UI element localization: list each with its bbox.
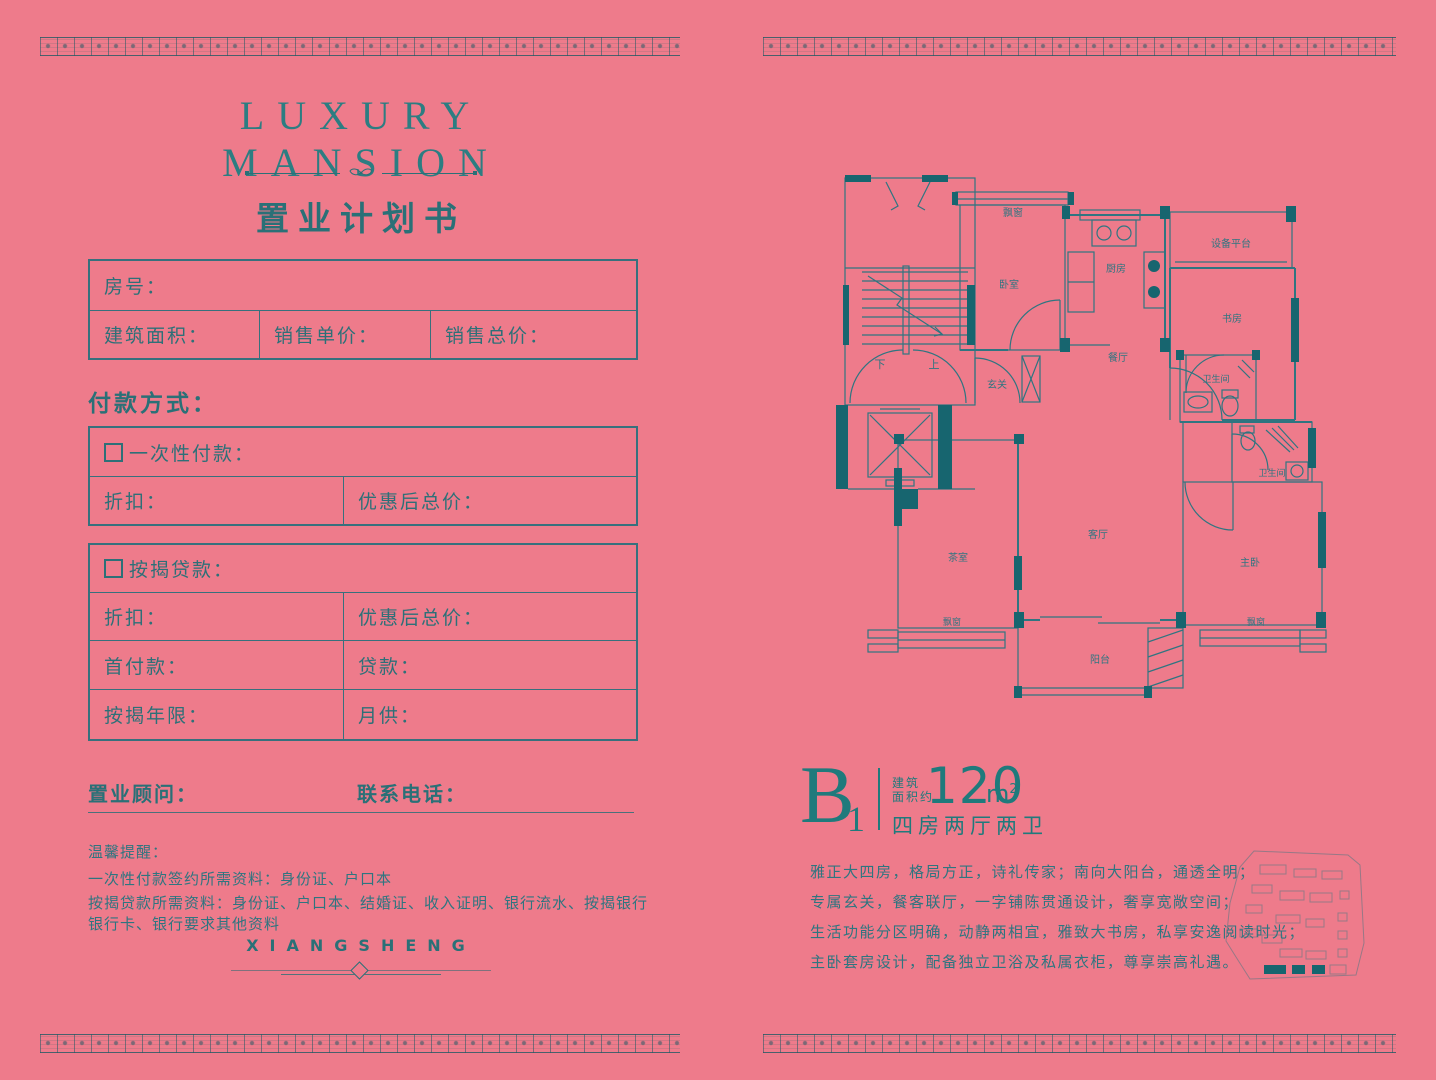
building-area-field: 建筑面积： bbox=[90, 311, 259, 358]
reminder-line-2: 按揭贷款所需资料：身份证、户口本、结婚证、收入证明、银行流水、按揭银行银行卡、银… bbox=[88, 892, 648, 934]
desc-line-4: 主卧套房设计，配备独立卫浴及私属衣柜，尊享崇高礼遇。 bbox=[810, 951, 1239, 972]
plan-label-living: 客厅 bbox=[1088, 528, 1108, 541]
unit-layout: 四房两厅两卫 bbox=[892, 810, 1048, 840]
plan-label-kitchen: 厨房 bbox=[1106, 262, 1126, 275]
plan-label-bay-top: 飘窗 bbox=[1003, 206, 1023, 219]
plan-label-tea: 茶室 bbox=[948, 551, 968, 564]
area-unit: m2 bbox=[986, 780, 1018, 808]
desc-line-2: 专属玄关，餐客联厅，一字铺陈贯通设计，奢享宽敞空间； bbox=[810, 891, 1239, 912]
consultant-label: 置业顾问： bbox=[88, 778, 198, 807]
mortgage-total-field: 优惠后总价： bbox=[343, 593, 636, 640]
one-time-total-field: 优惠后总价： bbox=[343, 477, 636, 524]
plan-label-master: 主卧 bbox=[1240, 556, 1260, 569]
one-time-payment-option: 一次性付款： bbox=[90, 428, 636, 476]
unit-code-sub: 1 bbox=[847, 798, 865, 840]
reminder-line-1: 一次性付款签约所需资料：身份证、户口本 bbox=[88, 868, 392, 889]
phone-label: 联系电话： bbox=[357, 778, 467, 807]
deco-border-bottom-right bbox=[763, 1034, 1396, 1053]
plan-label-stairs-up: 上 bbox=[929, 358, 940, 371]
one-time-payment-table: 一次性付款： 折扣： 优惠后总价： bbox=[88, 426, 638, 526]
deco-border-top-left bbox=[40, 37, 680, 56]
monthly-payment-field: 月供： bbox=[343, 690, 636, 739]
plan-label-bay-left: 飘窗 bbox=[943, 616, 961, 628]
footer-divider bbox=[231, 963, 491, 979]
plan-label-bedroom: 卧室 bbox=[999, 278, 1019, 291]
unit-price-field: 销售单价： bbox=[259, 311, 430, 358]
plan-label-bath2: 卫生间 bbox=[1258, 467, 1285, 479]
plan-label-study: 书房 bbox=[1222, 312, 1242, 325]
desc-line-1: 雅正大四房，格局方正，诗礼传家；南向大阳台，通透全明； bbox=[810, 861, 1256, 882]
one-time-discount-field: 折扣： bbox=[90, 477, 343, 524]
payment-method-heading: 付款方式： bbox=[88, 384, 218, 418]
total-price-field: 销售总价： bbox=[430, 311, 636, 358]
plan-label-equipment: 设备平台 bbox=[1211, 237, 1251, 250]
plan-label-bath1: 卫生间 bbox=[1202, 373, 1229, 385]
floor-plan: 飘窗 卧室 厨房 设备平台 书房 餐厅 玄关 卫生间 卫生间 茶室 客厅 主卧 … bbox=[830, 165, 1350, 725]
plan-label-balcony: 阳台 bbox=[1090, 653, 1110, 666]
deco-border-bottom-left bbox=[40, 1034, 680, 1053]
plan-label-foyer: 玄关 bbox=[987, 378, 1007, 391]
mortgage-checkbox[interactable] bbox=[104, 559, 123, 578]
title-divider bbox=[245, 166, 477, 180]
plan-label-bay-right: 飘窗 bbox=[1247, 616, 1265, 628]
loan-field: 贷款： bbox=[343, 641, 636, 689]
doc-title: 置业计划书 bbox=[88, 192, 634, 240]
info-table: 房号： 建筑面积： 销售单价： 销售总价： bbox=[88, 259, 638, 360]
plan-label-stairs-down: 下 bbox=[875, 358, 886, 371]
mortgage-years-field: 按揭年限： bbox=[90, 690, 343, 739]
down-payment-field: 首付款： bbox=[90, 641, 343, 689]
site-map-highlighted-buildings bbox=[1264, 965, 1325, 974]
mortgage-table: 按揭贷款： 折扣： 优惠后总价： 首付款： 贷款： 按揭年限： 月供： bbox=[88, 543, 638, 741]
fleuron-ornament-icon bbox=[348, 164, 374, 183]
plan-label-dining: 餐厅 bbox=[1108, 351, 1128, 364]
unit-divider-bar bbox=[878, 768, 880, 830]
mortgage-option: 按揭贷款： bbox=[90, 545, 636, 592]
diamond-ornament-icon bbox=[350, 961, 368, 979]
deco-border-top-right bbox=[763, 37, 1396, 56]
developer-brand: XIANGSHENG bbox=[88, 936, 634, 955]
signature-divider bbox=[88, 812, 634, 813]
mortgage-discount-field: 折扣： bbox=[90, 593, 343, 640]
one-time-checkbox[interactable] bbox=[104, 443, 123, 462]
room-number-field: 房号： bbox=[90, 261, 636, 310]
reminder-title: 温馨提醒： bbox=[88, 841, 168, 862]
brochure-page: LUXURY MANSION 置业计划书 房号： 建筑面积： bbox=[0, 0, 1436, 1080]
site-map bbox=[1218, 843, 1382, 993]
